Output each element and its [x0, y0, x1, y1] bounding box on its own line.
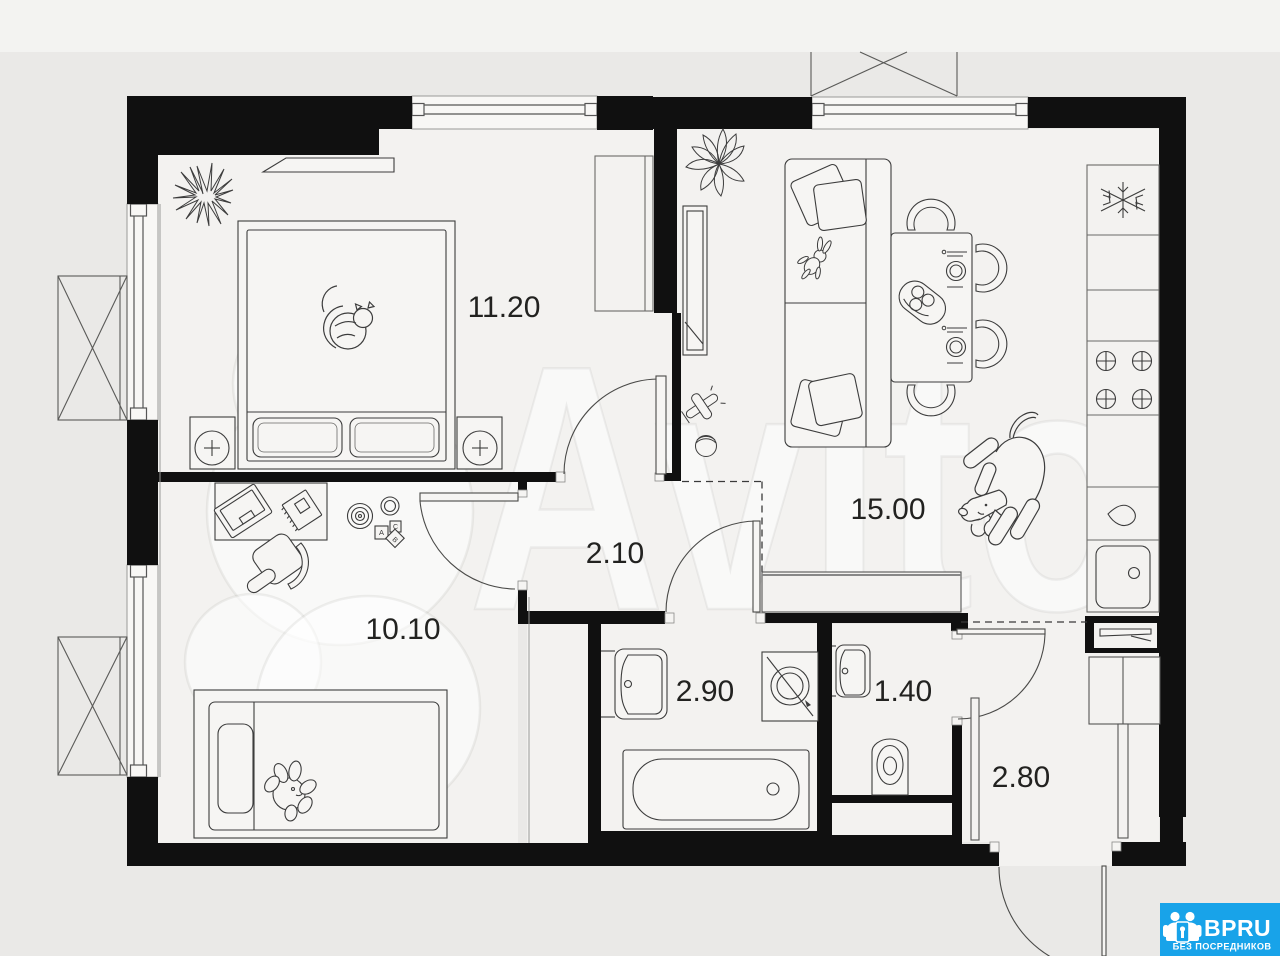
svg-text:A: A [379, 528, 384, 537]
svg-text:BPRU: BPRU [1204, 915, 1271, 941]
svg-text:БЕЗ ПОСРЕДНИКОВ: БЕЗ ПОСРЕДНИКОВ [1173, 942, 1272, 952]
svg-text:1.40: 1.40 [874, 675, 932, 708]
svg-text:15.00: 15.00 [850, 493, 925, 526]
svg-text:C: C [393, 524, 398, 531]
svg-text:2.90: 2.90 [676, 675, 734, 708]
svg-text:2.10: 2.10 [586, 537, 644, 570]
svg-text:10.10: 10.10 [365, 613, 440, 646]
svg-text:11.20: 11.20 [468, 291, 541, 324]
svg-text:2.80: 2.80 [992, 761, 1050, 794]
